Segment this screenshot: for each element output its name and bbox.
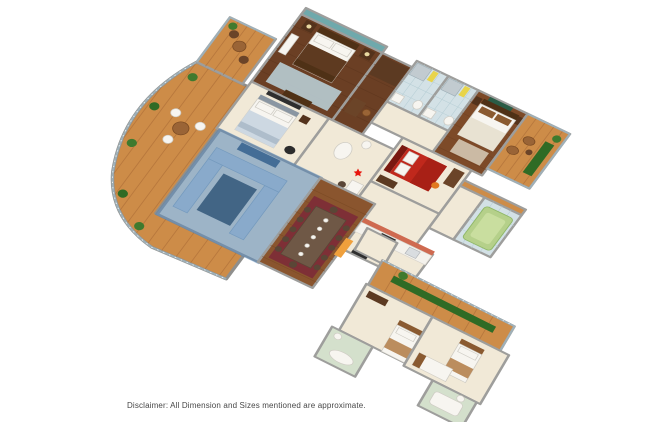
floor-plan-stage: Disclaimer: All Dimension and Sizes ment… [0, 0, 671, 422]
disclaimer-text: Disclaimer: All Dimension and Sizes ment… [127, 401, 366, 410]
floor-plan-rendering [0, 0, 671, 422]
